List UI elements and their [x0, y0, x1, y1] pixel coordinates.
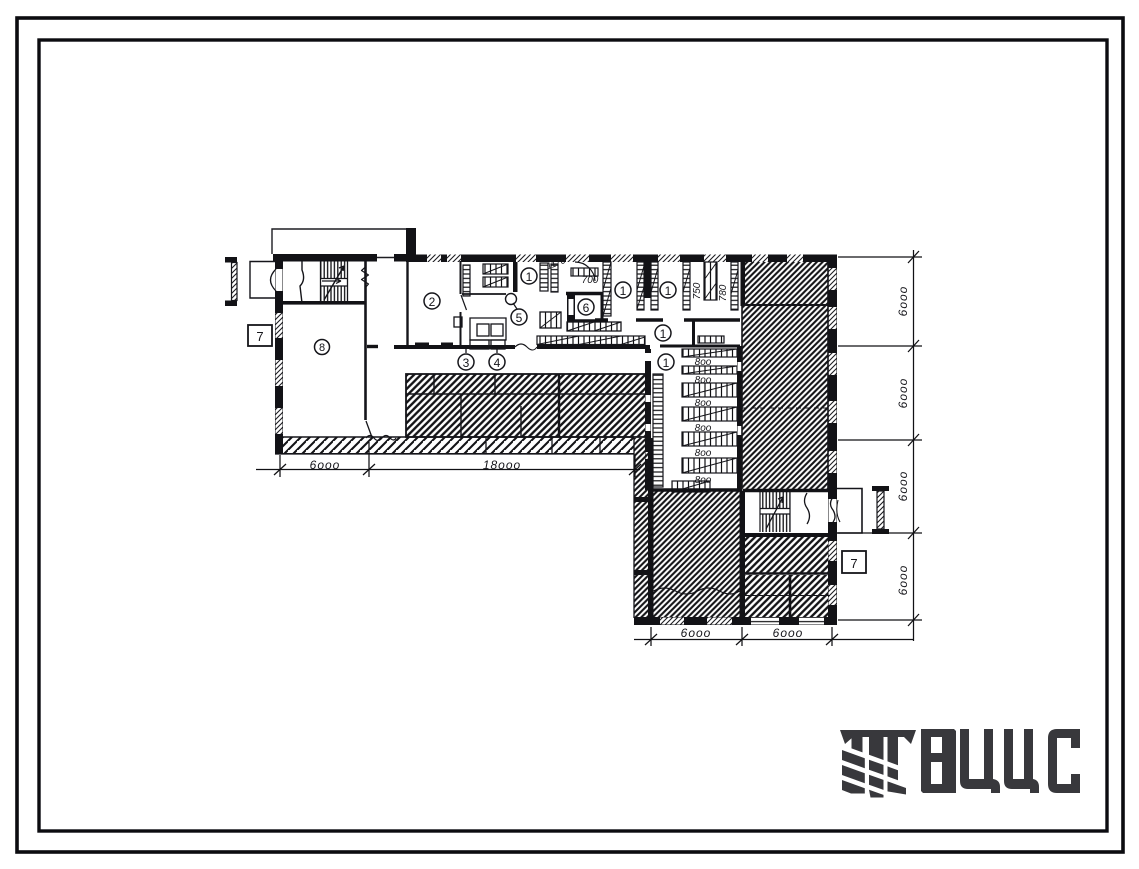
svg-text:6ooo: 6ooo — [896, 565, 910, 596]
svg-text:1: 1 — [526, 270, 533, 284]
svg-text:5: 5 — [516, 311, 523, 325]
svg-text:8oo: 8oo — [695, 375, 712, 386]
svg-text:780: 780 — [718, 284, 729, 301]
svg-text:6ooo: 6ooo — [681, 626, 712, 640]
svg-text:7: 7 — [256, 329, 263, 344]
svg-text:8oo: 8oo — [695, 423, 712, 434]
svg-text:6ooo: 6ooo — [896, 378, 910, 409]
svg-text:8oo: 8oo — [695, 357, 712, 368]
svg-text:750: 750 — [692, 282, 703, 299]
svg-text:1: 1 — [665, 284, 672, 298]
svg-text:700: 700 — [582, 275, 599, 286]
svg-text:2: 2 — [429, 295, 436, 309]
svg-text:18ooo: 18ooo — [483, 458, 521, 472]
svg-text:8oo: 8oo — [695, 398, 712, 409]
svg-text:6ooo: 6ooo — [773, 626, 804, 640]
svg-text:6ooo: 6ooo — [896, 471, 910, 502]
svg-text:6ooo: 6ooo — [896, 286, 910, 317]
svg-text:6: 6 — [583, 301, 590, 315]
svg-text:6ooo: 6ooo — [310, 458, 341, 472]
svg-text:1: 1 — [663, 356, 670, 370]
svg-text:8oo: 8oo — [695, 448, 712, 459]
svg-text:8oo: 8oo — [695, 475, 712, 486]
svg-text:8: 8 — [319, 342, 325, 354]
svg-text:3: 3 — [463, 356, 470, 370]
svg-text:1: 1 — [620, 284, 627, 298]
svg-text:7: 7 — [850, 556, 857, 571]
svg-text:1: 1 — [660, 327, 667, 341]
svg-text:4: 4 — [494, 356, 501, 370]
